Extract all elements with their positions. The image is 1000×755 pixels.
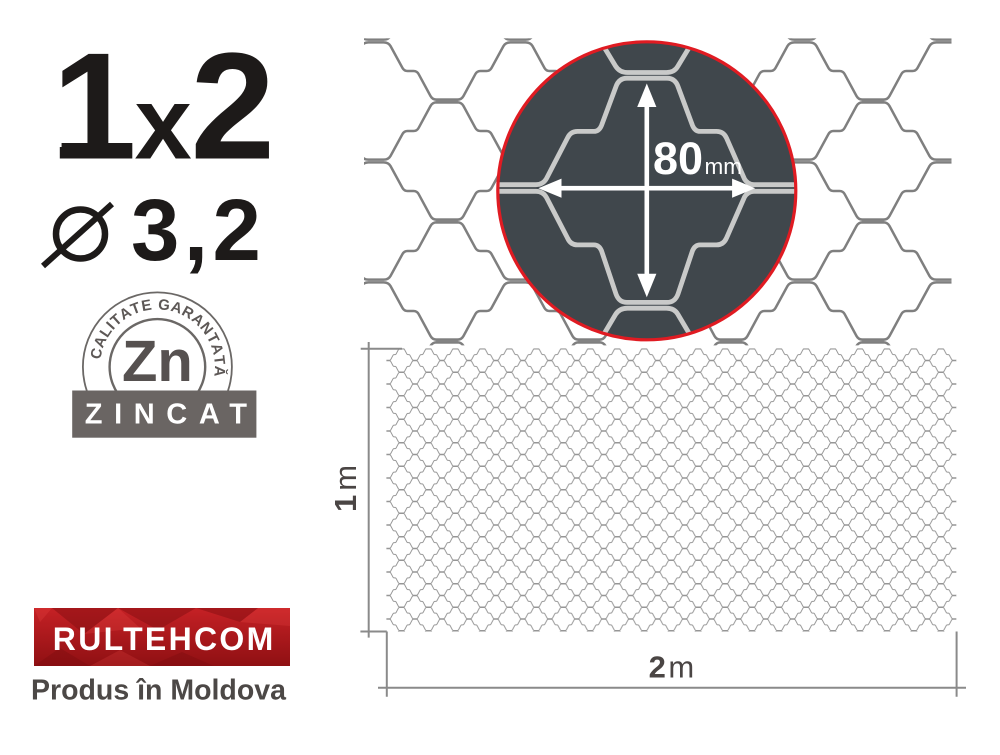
svg-text:80: 80 [653,133,703,184]
svg-text:3,2: 3,2 [131,182,265,279]
svg-text:2m: 2m [649,649,697,684]
svg-text:mm: mm [705,154,743,179]
svg-text:2: 2 [191,22,276,192]
svg-text:ZINCAT: ZINCAT [85,399,259,431]
svg-text:RULTEHCOM: RULTEHCOM [53,621,276,657]
svg-text:Produs în Moldova: Produs în Moldova [31,675,287,707]
svg-text:Zn: Zn [122,329,193,394]
svg-text:1: 1 [52,22,137,192]
svg-text:1m: 1m [328,461,363,512]
svg-text:Ă: Ă [210,365,228,377]
svg-text:T: T [210,355,228,366]
svg-text:x: x [135,66,192,181]
